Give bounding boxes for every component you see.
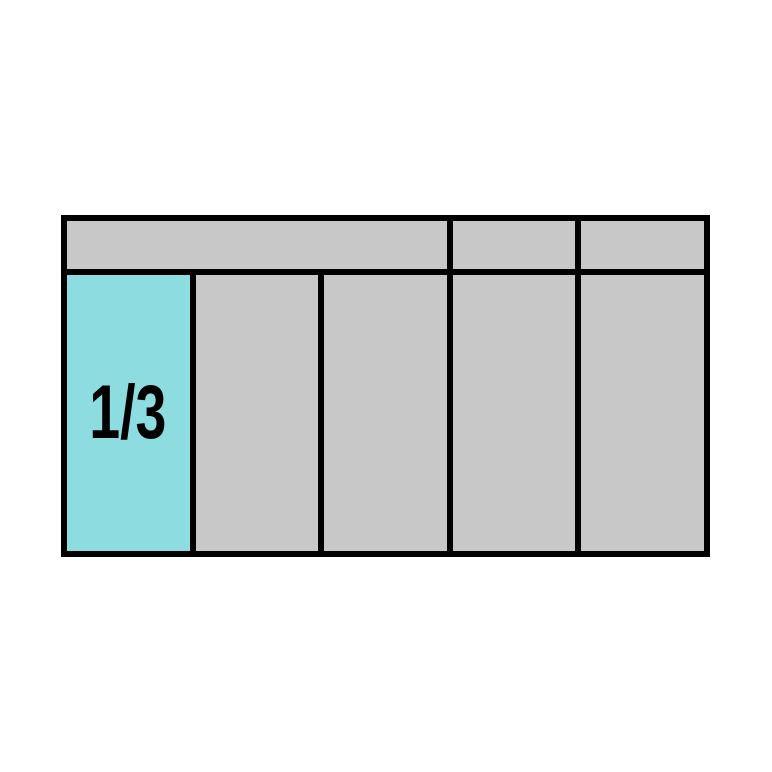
header-section-mid xyxy=(453,221,576,269)
page-background: { "figure": { "fraction_label": "1/3", "… xyxy=(0,0,772,772)
slot-3 xyxy=(324,275,447,551)
tray-grid-frame: 1/3 xyxy=(61,215,710,557)
slot-5 xyxy=(581,275,704,551)
slot-4 xyxy=(453,275,576,551)
slot-2 xyxy=(196,275,319,551)
header-section-wide xyxy=(67,221,447,269)
fraction-label: 1/3 xyxy=(90,375,167,451)
header-section-right xyxy=(581,221,704,269)
slot-highlighted-one-third: 1/3 xyxy=(67,275,190,551)
